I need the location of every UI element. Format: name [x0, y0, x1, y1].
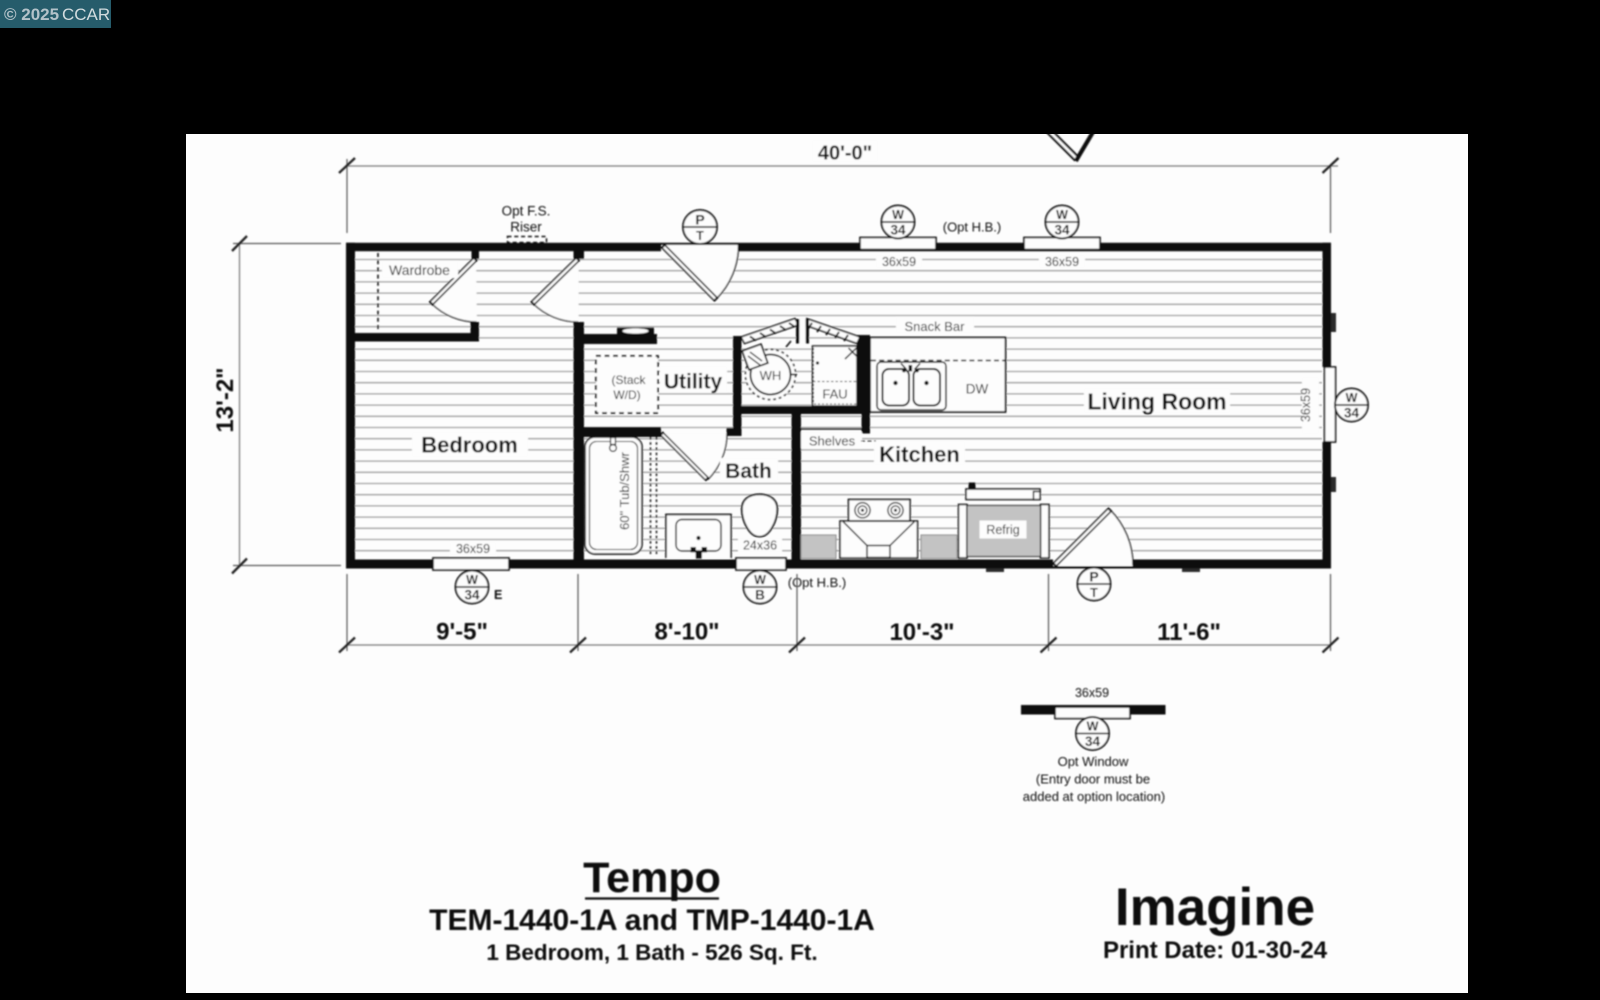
svg-text:W/D): W/D): [613, 388, 640, 402]
svg-text:Tempo: Tempo: [583, 854, 721, 902]
svg-text:Utility: Utility: [664, 371, 723, 394]
svg-text:P: P: [1089, 569, 1098, 585]
svg-text:© 2025: © 2025: [4, 5, 59, 24]
svg-text:Kitchen: Kitchen: [879, 442, 960, 467]
svg-text:36x59: 36x59: [882, 255, 916, 269]
svg-text:Print Date: 01-30-24: Print Date: 01-30-24: [1103, 937, 1328, 964]
svg-text:60" Tub/Shwr: 60" Tub/Shwr: [617, 452, 632, 530]
svg-text:Imagine: Imagine: [1115, 878, 1315, 937]
svg-text:Bath: Bath: [725, 460, 772, 483]
svg-text:Wardrobe: Wardrobe: [389, 262, 450, 278]
svg-text:Living Room: Living Room: [1087, 389, 1226, 415]
svg-text:(Entry door must be: (Entry door must be: [1036, 772, 1150, 787]
svg-text:T: T: [1090, 586, 1098, 600]
svg-text:(Opt H.B.): (Opt H.B.): [943, 220, 1002, 235]
svg-text:E: E: [494, 588, 502, 602]
svg-text:T: T: [696, 229, 704, 243]
svg-text:36x59: 36x59: [1299, 388, 1313, 422]
svg-text:10'-3": 10'-3": [889, 619, 954, 646]
svg-text:11'-6": 11'-6": [1157, 619, 1221, 646]
svg-text:W: W: [1056, 208, 1068, 222]
svg-text:Riser: Riser: [510, 220, 542, 235]
svg-text:W: W: [1087, 720, 1099, 734]
svg-text:36x59: 36x59: [1045, 255, 1079, 269]
svg-text:34: 34: [1054, 223, 1070, 238]
svg-text:Opt F.S.: Opt F.S.: [502, 204, 551, 219]
svg-text:DW: DW: [966, 382, 989, 397]
svg-text:8'-10": 8'-10": [654, 619, 719, 646]
svg-text:9'-5": 9'-5": [436, 619, 488, 646]
svg-text:34: 34: [1085, 734, 1101, 749]
svg-text:Bedroom: Bedroom: [421, 433, 518, 458]
svg-text:Opt Window: Opt Window: [1058, 754, 1129, 769]
svg-text:WH: WH: [760, 368, 782, 383]
svg-text:W: W: [466, 573, 478, 587]
svg-text:W: W: [754, 573, 766, 587]
svg-text:FAU: FAU: [822, 387, 847, 402]
svg-text:34: 34: [464, 588, 480, 603]
svg-text:W: W: [892, 208, 904, 222]
svg-text:(Stack: (Stack: [611, 373, 646, 387]
svg-text:36x59: 36x59: [1075, 686, 1109, 700]
svg-text:13'-2": 13'-2": [212, 367, 239, 432]
svg-text:36x59: 36x59: [456, 542, 490, 556]
svg-text:B: B: [755, 588, 765, 603]
svg-text:added at option location): added at option location): [1023, 789, 1165, 804]
svg-text:34: 34: [1344, 406, 1360, 421]
svg-text:40'-0": 40'-0": [818, 143, 872, 165]
svg-text:34: 34: [890, 223, 906, 238]
svg-text:1 Bedroom, 1 Bath - 526 Sq. Ft: 1 Bedroom, 1 Bath - 526 Sq. Ft.: [486, 940, 817, 965]
svg-text:Shelves: Shelves: [809, 434, 856, 449]
svg-text:Refrig: Refrig: [986, 523, 1019, 537]
svg-text:W: W: [1346, 391, 1358, 405]
svg-text:24x36: 24x36: [743, 539, 777, 553]
svg-text:CCAR: CCAR: [62, 5, 110, 24]
svg-text:TEM-1440-1A and TMP-1440-1A: TEM-1440-1A and TMP-1440-1A: [429, 904, 875, 937]
svg-text:Snack Bar: Snack Bar: [905, 319, 966, 334]
svg-text:P: P: [695, 212, 704, 228]
